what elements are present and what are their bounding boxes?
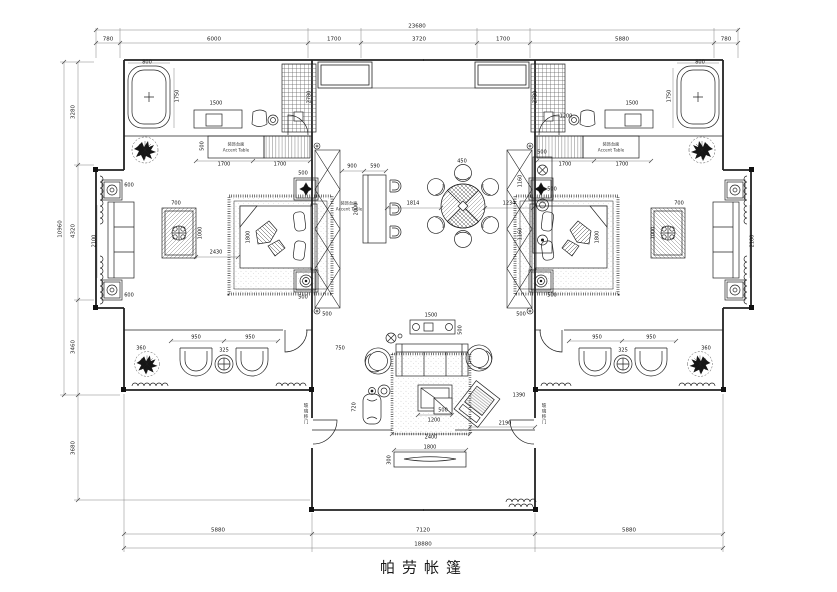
dim-label: 23680	[408, 24, 426, 30]
side-table-icon	[102, 180, 122, 200]
window-seat	[100, 176, 134, 304]
dim-label: 1750	[176, 90, 181, 103]
dim-label: 1814	[407, 202, 420, 207]
bar-accent-label-en: Accent Table	[336, 206, 362, 211]
dim-label: 3720	[412, 37, 426, 43]
armchair-icon	[236, 348, 268, 376]
dim-label: 500	[516, 313, 526, 318]
dim-label: 1700	[218, 163, 231, 168]
dim-label: 1390	[513, 394, 526, 399]
sliding-door-label: 玻璃移门	[540, 403, 546, 425]
dim-label: 5880	[615, 37, 629, 43]
dim-label: 800	[695, 61, 705, 66]
dimension-lines	[60, 28, 750, 552]
dim-label: 1500	[210, 102, 223, 107]
dim-label: 950	[592, 336, 602, 341]
sliding-door-label: 玻璃移门	[302, 403, 308, 425]
dim-label: 4320	[71, 224, 77, 238]
dim-label: 2100	[93, 235, 98, 248]
dim-label: 1750	[668, 90, 673, 103]
round-table-icon	[215, 355, 233, 373]
dim-label: 1700	[616, 163, 629, 168]
dim-label: 500	[547, 294, 557, 299]
left-wing	[93, 60, 424, 512]
dim-label: 500	[537, 151, 547, 156]
dim-label: 18880	[414, 542, 432, 548]
bar-stool-icon	[390, 203, 401, 215]
accent-table-label-en: Accent Table	[598, 147, 624, 152]
plant-icon	[132, 137, 158, 163]
accent-table-label-en: Accent Table	[223, 147, 249, 152]
dim-label: 325	[219, 349, 229, 354]
dim-label: 2100	[751, 235, 756, 248]
plant-icon	[135, 352, 160, 377]
dim-label: 1200	[428, 419, 441, 424]
dim-label: 1234	[503, 202, 516, 207]
dim-label: 500	[298, 172, 308, 177]
armchair-icon	[180, 348, 212, 376]
dim-label: 1000	[199, 227, 204, 240]
door-arc	[285, 330, 307, 352]
dim-label: 5880	[622, 528, 636, 534]
dim-label: 1160	[519, 228, 524, 241]
accent-table-label-cn: 装饰台面	[603, 141, 620, 146]
dim-label: 700	[674, 202, 684, 207]
dim-label: 2400	[425, 436, 438, 441]
door-arc	[313, 420, 337, 444]
dim-label: 1800	[424, 446, 437, 451]
dim-label: 500	[201, 141, 206, 151]
dim-label: 780	[103, 37, 114, 43]
dim-label: 2780	[534, 91, 539, 104]
dim-label: 3280	[71, 105, 77, 119]
dim-label: 1160	[519, 175, 524, 188]
bar-accent-label-cn: 装饰台面	[341, 200, 358, 205]
dim-label: 1800	[596, 231, 601, 244]
dim-label: 720	[353, 402, 358, 412]
dim-label: 750	[335, 347, 345, 352]
dim-label: 7120	[416, 528, 430, 534]
dim-label: 325	[618, 349, 628, 354]
dim-label: 2190	[499, 422, 512, 427]
window-sill	[132, 383, 306, 386]
floor-plan-canvas: 23680 780 6000 1700 3720 1700 5880 780 5…	[0, 0, 837, 592]
dim-label: 2780	[308, 91, 313, 104]
dim-label: 500	[298, 296, 308, 301]
dim-label: 600	[124, 184, 134, 189]
dim-label: 300	[388, 455, 393, 465]
dim-label: 500	[322, 313, 332, 318]
dim-label: 950	[646, 336, 656, 341]
floor-lamp-icon	[386, 333, 402, 343]
dim-label: 500	[438, 409, 448, 414]
swivel-chair-icon	[361, 344, 396, 379]
side-table-icon	[369, 385, 391, 397]
dining-table-icon	[424, 165, 502, 248]
dim-label: 1500	[425, 314, 438, 319]
bathtub-icon	[128, 66, 170, 128]
dim-label: 3680	[71, 441, 77, 455]
stool-icon	[252, 110, 267, 127]
console-table-icon	[410, 320, 455, 334]
dim-label: 3460	[71, 340, 77, 354]
dim-label: 1700	[274, 163, 287, 168]
dim-label: 360	[701, 347, 711, 352]
dim-label: 1800	[247, 231, 252, 244]
dim-label: 700	[171, 202, 181, 207]
dim-label: 1700	[496, 37, 510, 43]
bar-counter-icon	[363, 175, 386, 243]
dim-label: 10960	[58, 220, 64, 238]
dim-label: 950	[245, 336, 255, 341]
dim-label: 600	[124, 294, 134, 299]
dim-label: 780	[721, 37, 732, 43]
coffee-table-icon	[162, 208, 196, 258]
dim-label: 2430	[210, 251, 223, 256]
dim-label: 950	[191, 336, 201, 341]
dim-label: 1200	[560, 115, 573, 120]
sofa-icon	[108, 202, 134, 278]
drawing-title: 帕劳帐篷	[380, 557, 468, 578]
right-wing	[423, 60, 754, 512]
dim-label: 900	[347, 165, 357, 170]
bed-icon	[240, 204, 317, 270]
accent-table-label-cn: 装饰台面	[228, 141, 245, 146]
dim-label: 500	[459, 325, 464, 335]
sink-icon	[268, 115, 278, 125]
dim-label: 1700	[327, 37, 341, 43]
dim-label: 800	[142, 61, 152, 66]
bar-stool-icon	[390, 226, 401, 238]
bar-stool-icon	[390, 180, 401, 192]
dim-label: 5880	[211, 528, 225, 534]
dim-label: 590	[370, 165, 380, 170]
tv-cabinet-icon	[394, 452, 466, 467]
dim-label: 1000	[652, 227, 657, 240]
dim-label: 500	[547, 188, 557, 193]
bench-icon	[363, 394, 381, 424]
dim-label: 1500	[626, 102, 639, 107]
center-block	[361, 88, 552, 507]
vanity-icon	[194, 110, 242, 128]
side-table-icon	[102, 280, 122, 300]
dim-label: 450	[457, 160, 467, 165]
dim-label: 1700	[559, 163, 572, 168]
dim-label: 360	[136, 347, 146, 352]
steps-icon	[506, 499, 536, 507]
dim-label: 6000	[207, 37, 221, 43]
